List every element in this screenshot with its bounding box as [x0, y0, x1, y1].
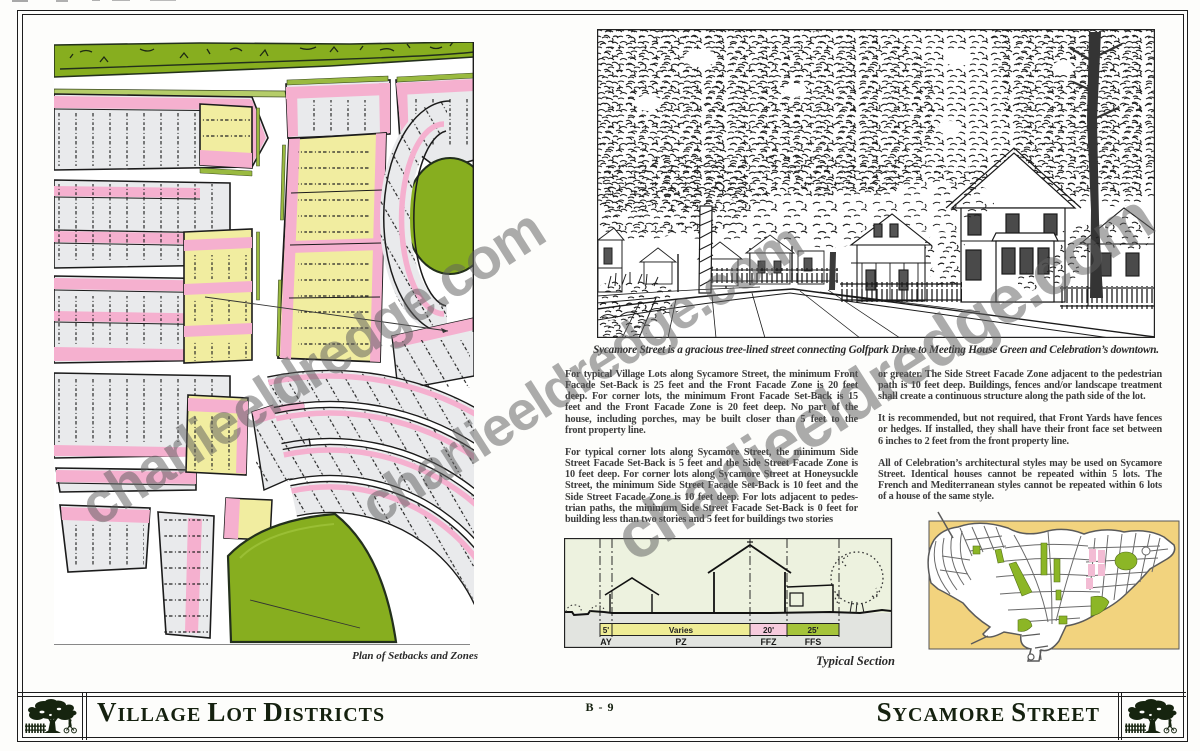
svg-text:AY: AY	[600, 637, 612, 647]
svg-text:25': 25'	[807, 626, 818, 635]
svg-text:FFS: FFS	[805, 637, 822, 647]
svg-text:20': 20'	[763, 626, 774, 635]
svg-text:PZ: PZ	[675, 637, 687, 647]
svg-text:5': 5'	[603, 626, 610, 635]
svg-text:Varies: Varies	[669, 626, 694, 635]
svg-text:FFZ: FFZ	[760, 637, 777, 647]
